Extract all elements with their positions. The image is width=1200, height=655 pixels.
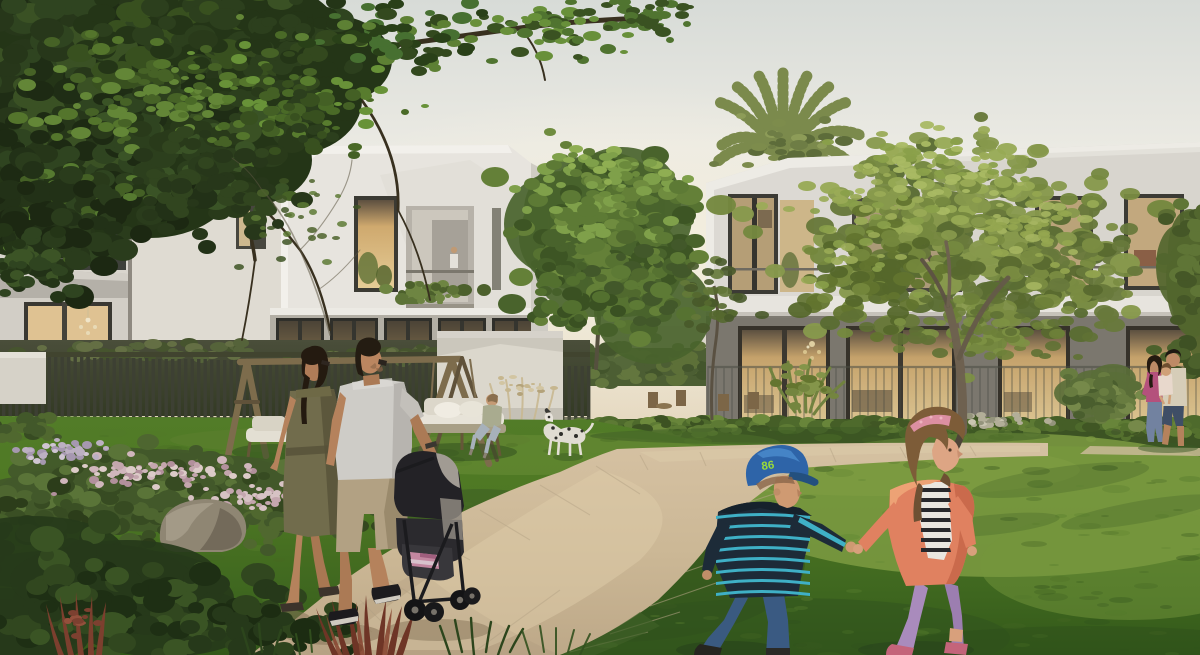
svg-text:86: 86 [761,459,775,473]
